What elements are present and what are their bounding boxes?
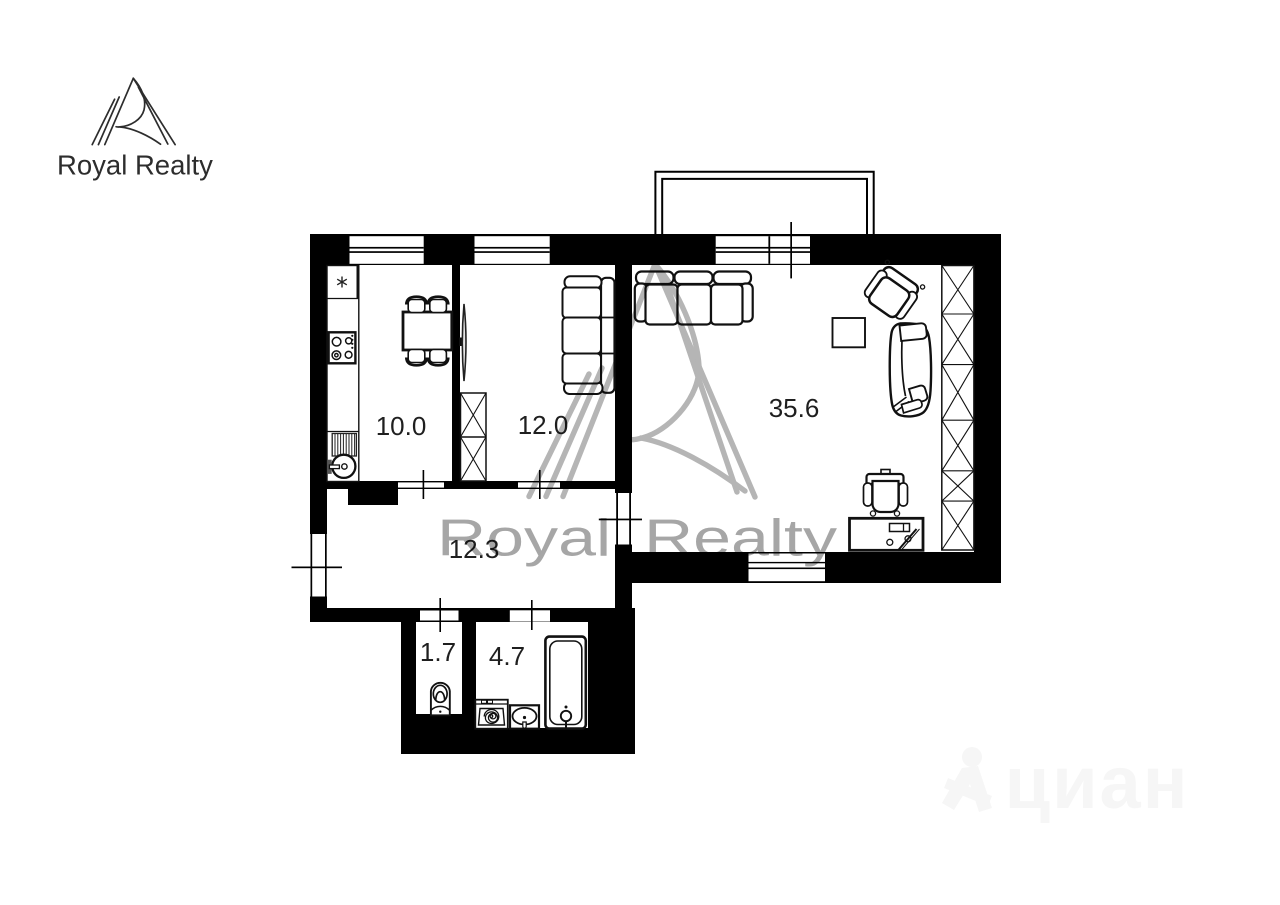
svg-text:1.7: 1.7	[420, 637, 456, 667]
svg-text:циан: циан	[1005, 741, 1190, 824]
svg-text:10.0: 10.0	[376, 411, 427, 441]
svg-text:35.6: 35.6	[769, 393, 820, 423]
svg-text:Royal: Royal	[437, 508, 611, 566]
svg-text:Realty: Realty	[644, 508, 838, 566]
svg-text:4.7: 4.7	[489, 641, 525, 671]
svg-text:Royal Realty: Royal Realty	[57, 150, 213, 181]
